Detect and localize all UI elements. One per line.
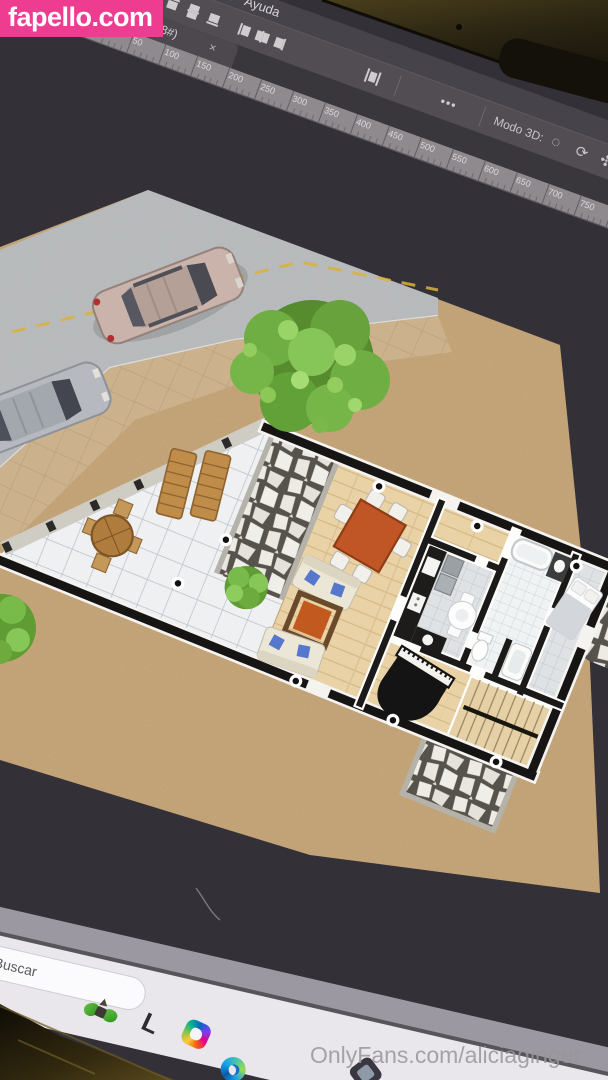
webcam-dot <box>456 24 462 30</box>
footer-watermark: OnlyFans.com/aliciaginger <box>310 1042 581 1069</box>
photographed-laptop-screen: a Ayuda ••• Modo 3D: ◌ ⟳ <box>0 0 608 1080</box>
banner-text: fapello.com <box>8 2 153 33</box>
fapello-banner: fapello.com <box>0 0 163 37</box>
bottom-bezel <box>0 1004 175 1080</box>
laptop-bezel <box>0 0 608 1080</box>
